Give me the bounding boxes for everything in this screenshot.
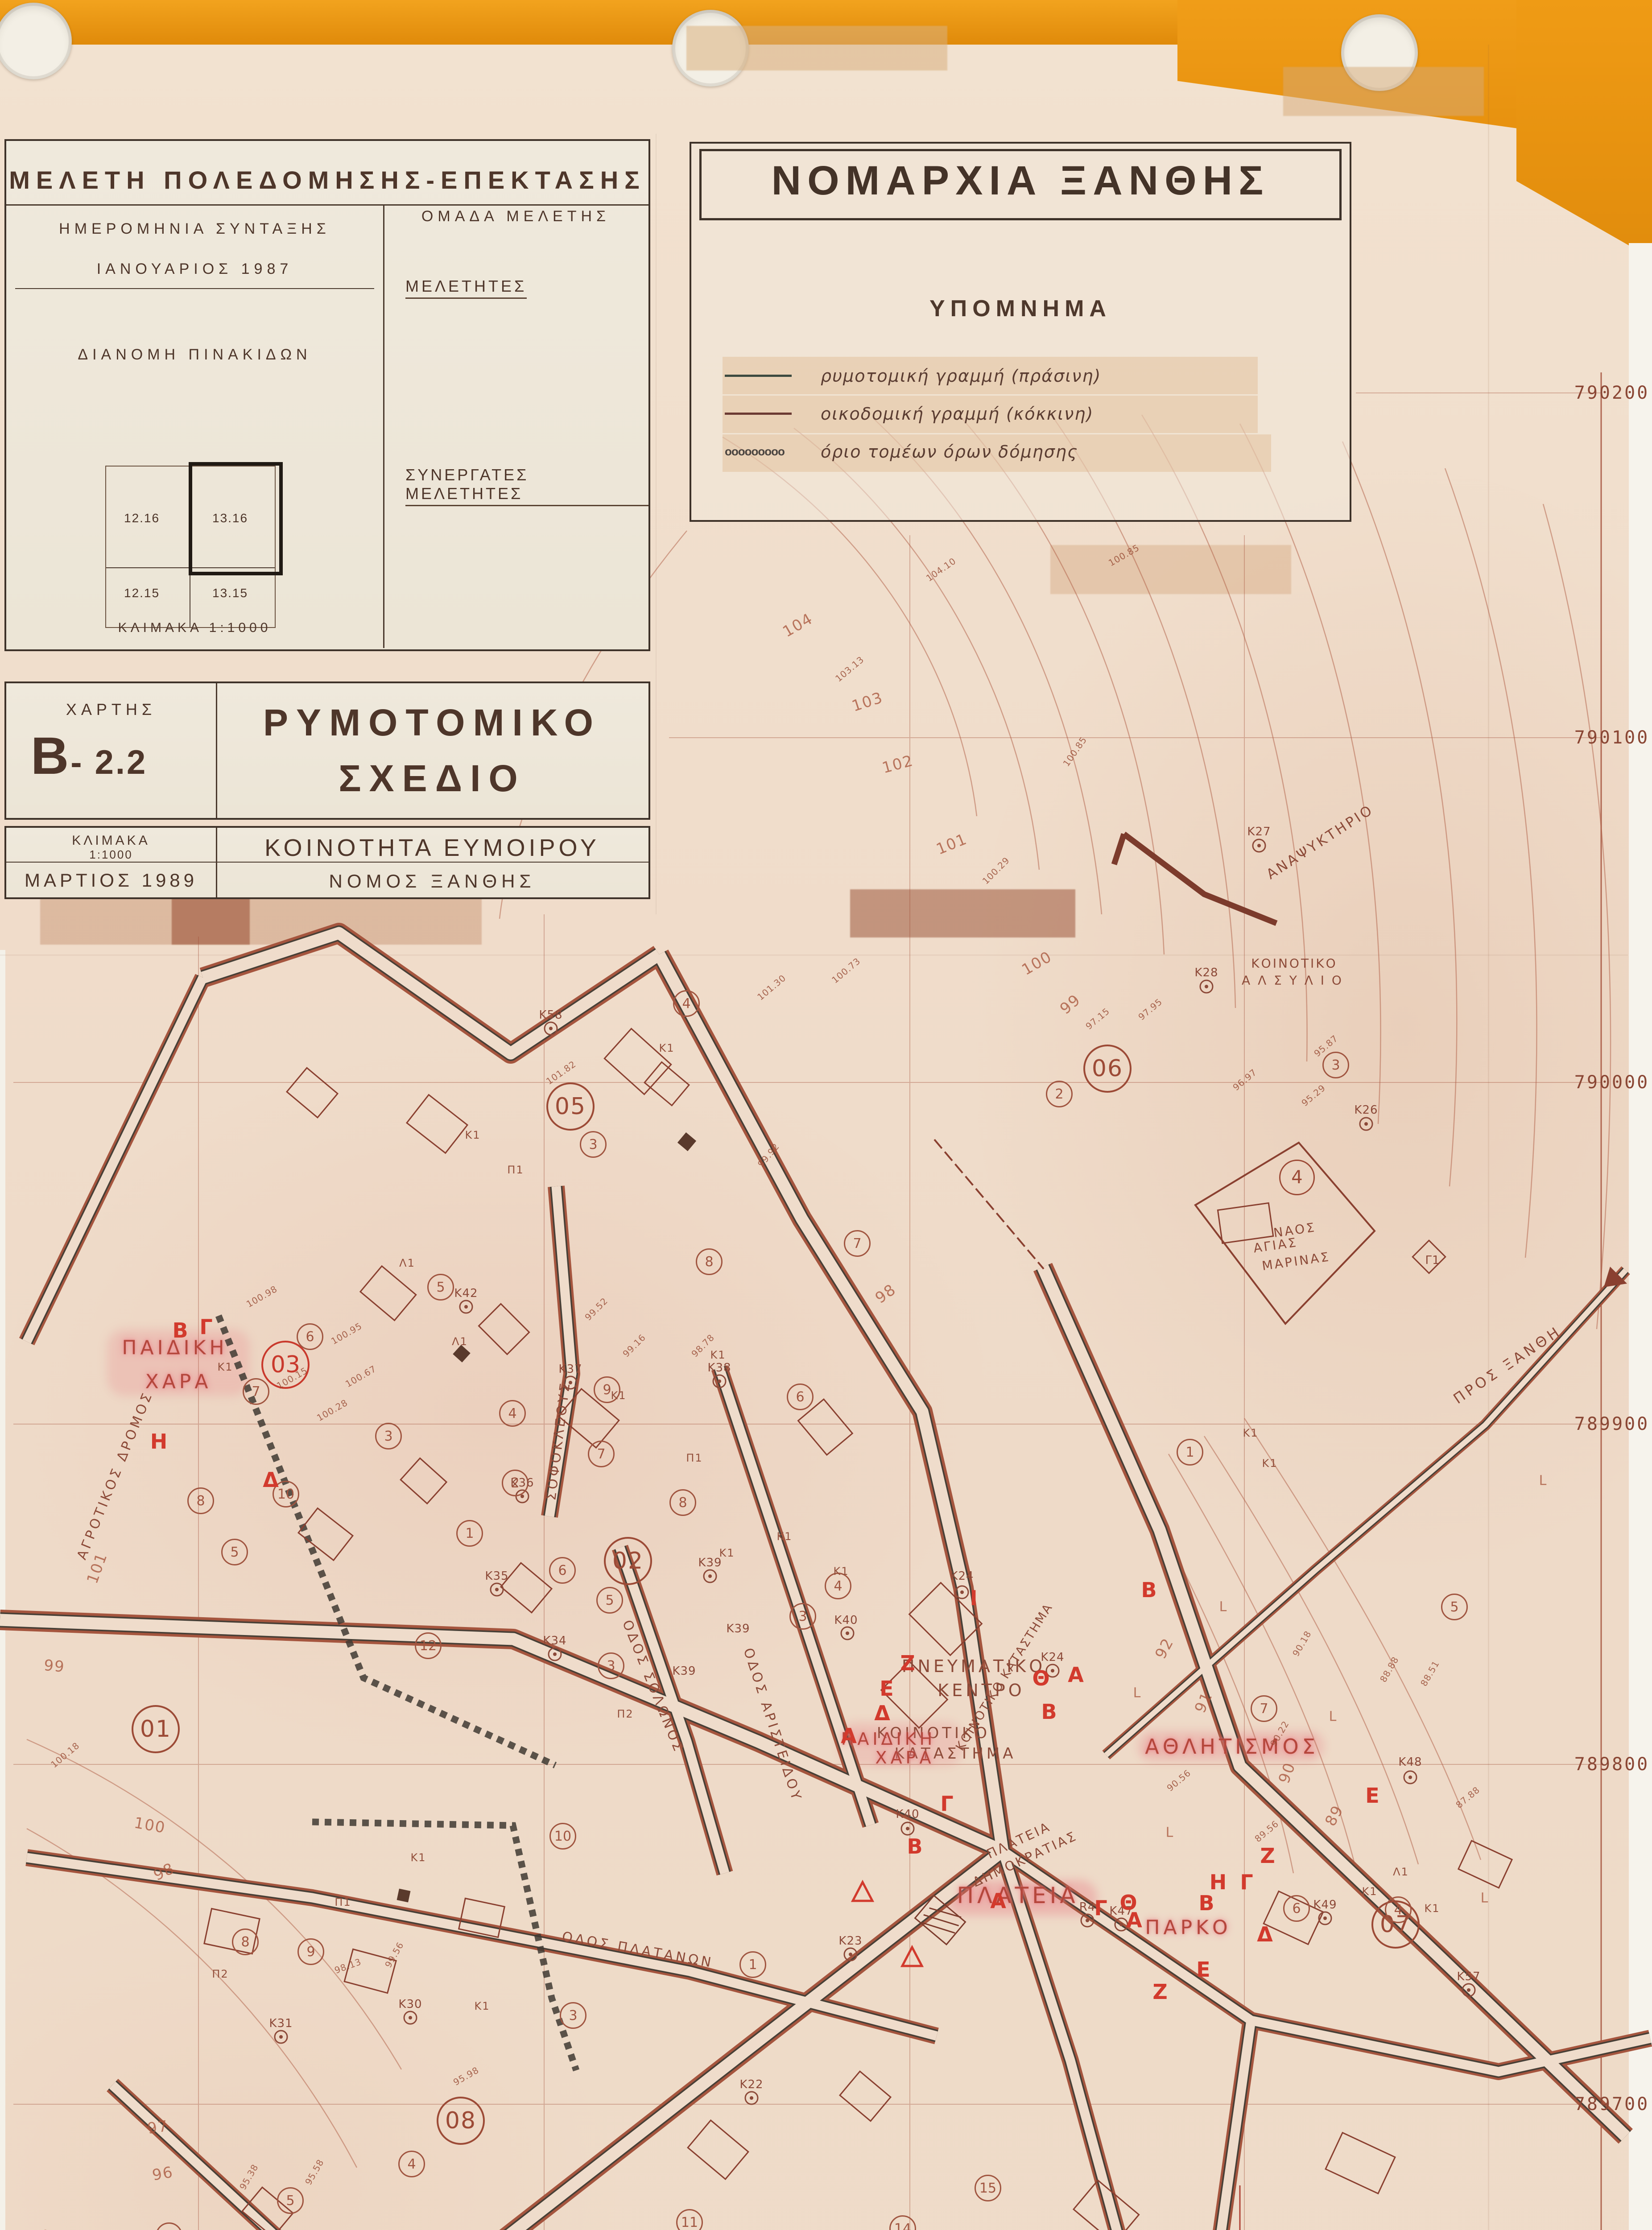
survey-point-label: Κ42 <box>454 1287 478 1300</box>
red-vertex-letter: Ζ <box>1152 1980 1167 2004</box>
contour-label: 104 <box>780 610 816 641</box>
grid-coordinate: 790200 <box>1574 383 1650 403</box>
block-number: 7 <box>844 1230 871 1257</box>
survey-point-label: Κ40 <box>834 1614 858 1627</box>
block-number: 3 <box>598 1652 624 1679</box>
building-code-label: Κ1 <box>410 1851 426 1864</box>
spot-height-label: 89.56 <box>1252 1818 1280 1844</box>
street-name-label: ΑΓΡΟΤΙΚΟΣ ΔΡΟΜΟΣ <box>74 1389 156 1562</box>
map-area-label: ΠΑΡΚΟ <box>1145 1916 1231 1939</box>
building-code-label: Κ1 <box>611 1389 626 1402</box>
contour-label: 99 <box>1057 991 1084 1018</box>
map-area-label: Α Λ Σ Υ Λ Ι Ο <box>1242 973 1343 988</box>
block-number: 11 <box>676 2209 703 2230</box>
survey-point-label: Κ24 <box>950 1569 974 1583</box>
red-vertex-letter: Β <box>1141 1578 1156 1602</box>
building-code-label: Π1 <box>686 1452 702 1464</box>
building-code-label: Π2 <box>617 1708 633 1720</box>
survey-point-label: Κ23 <box>838 1934 862 1948</box>
map-area-label: ΠΝΕΥΜΑΤΙΚΟ <box>902 1656 1045 1676</box>
block-number: 12 <box>415 1632 442 1659</box>
spot-height-label: 99.52 <box>583 1296 610 1323</box>
red-vertex-letter: Γ <box>940 1792 953 1816</box>
survey-point-label: Κ26 <box>1354 1103 1378 1117</box>
red-vertex-letter: Δ <box>874 1701 890 1725</box>
block-number: 8 <box>187 1487 214 1514</box>
red-vertex-letter: Β <box>172 1318 188 1342</box>
contour-label: 97 <box>146 2117 169 2138</box>
spot-height-label: 100.28 <box>315 1397 350 1424</box>
contour-label: L <box>1539 1473 1548 1489</box>
block-number: 6 <box>787 1383 814 1410</box>
block-number: 4 <box>499 1400 526 1427</box>
building-code-label: Λ1 <box>452 1335 468 1348</box>
building-code-label: Κ1 <box>710 1349 726 1361</box>
contour-label: L <box>1166 1825 1174 1841</box>
contour-label: L <box>1481 1891 1489 1906</box>
spot-height-label: 98.13 <box>333 1956 363 1976</box>
sector-number: 08 <box>437 2097 485 2145</box>
map-area-label: ΑΓΙΑΣ <box>1252 1235 1298 1256</box>
survey-point-label: Κ28 <box>1194 966 1218 979</box>
building-code-label: Κ1 <box>1262 1457 1277 1470</box>
map-area-label: ΑΘΛΗΤΙΣΜΟΣ <box>1145 1734 1318 1759</box>
contour-label: 100 <box>1019 948 1055 979</box>
survey-point-label: Κ34 <box>543 1634 566 1648</box>
building-code-label: Π2 <box>212 1968 228 1980</box>
map-area-label: ΚΕΝΤΡΟ <box>938 1681 1024 1700</box>
spot-height-label: 101.30 <box>755 972 788 1002</box>
grid-coordinate: 789900 <box>1574 1414 1650 1434</box>
building-code-label: Κ1 <box>776 1530 792 1543</box>
building-code-label: Κ1 <box>833 1565 849 1578</box>
block-number: 8 <box>696 1248 723 1275</box>
block-number: 4 <box>1279 1160 1315 1195</box>
block-number: 6 <box>297 1323 323 1350</box>
block-number: 15 <box>975 2175 1001 2201</box>
contour-label: 98 <box>872 1280 900 1307</box>
spot-height-label: 104.10 <box>924 555 958 583</box>
spot-height-label: 100.85 <box>1107 542 1141 569</box>
red-vertex-letter: Α <box>841 1724 857 1748</box>
block-number: 3 <box>580 1131 607 1158</box>
red-vertex-letter: Θ <box>1032 1666 1049 1690</box>
spot-height-label: 100.67 <box>343 1363 378 1390</box>
survey-point-label: Κ36 <box>510 1476 534 1490</box>
survey-point-label: Κ24 <box>1041 1651 1064 1664</box>
survey-point-label: Κ39 <box>726 1622 750 1635</box>
contour-label: 100 <box>133 1814 167 1837</box>
contour-label: 89 <box>1322 1802 1347 1829</box>
block-number: 7 <box>243 1378 269 1405</box>
red-vertex-letter: Ζ <box>900 1651 915 1675</box>
red-vertex-letter: Β <box>907 1834 922 1858</box>
spot-height-label: 88.88 <box>1378 1655 1401 1684</box>
spot-height-label: 97.95 <box>1136 996 1164 1022</box>
red-vertex-letter: Ε <box>880 1677 893 1701</box>
contour-label: 91 <box>1191 1689 1216 1716</box>
spot-height-label: 99.16 <box>621 1332 648 1359</box>
building-code-label: Κ1 <box>1424 1902 1440 1915</box>
block-number: 3 <box>375 1423 402 1449</box>
map-area-label: ΠΡΟΣ ΞΑΝΘΗ <box>1450 1322 1565 1407</box>
building-code-label: Λ1 <box>399 1257 415 1269</box>
spot-height-label: 100.85 <box>1061 735 1089 768</box>
block-number: 1 <box>1177 1439 1203 1466</box>
spot-height-label: 100.95 <box>329 1321 364 1347</box>
spot-height-label: 95.98 <box>451 2065 481 2088</box>
spot-height-label: 99.56 <box>383 1940 406 1970</box>
block-number: 5 <box>427 1274 454 1301</box>
building-code-label: Κ1 <box>1243 1427 1258 1439</box>
block-number: 4 <box>673 990 700 1017</box>
survey-point-label: Γ1 <box>1425 1254 1440 1267</box>
block-number: 5 <box>596 1587 623 1614</box>
block-number: 7 <box>588 1441 615 1467</box>
spot-height-label: 88.51 <box>1418 1659 1441 1688</box>
block-number: 3 <box>560 2002 586 2029</box>
block-number: 6 <box>1283 1895 1310 1922</box>
spot-height-label: 97.15 <box>1083 1006 1111 1032</box>
red-vertex-letter: Α <box>1068 1663 1084 1687</box>
block-number: 9 <box>297 1938 324 1965</box>
survey-point-label: Κ39 <box>698 1556 722 1569</box>
red-vertex-letter: Α <box>1126 1908 1142 1932</box>
block-number: 3 <box>789 1603 816 1630</box>
street-name-label: ΟΔΟΣ ΠΛΑΤΑΝΩΝ <box>561 1929 714 1971</box>
survey-point-label: Κ58 <box>539 1008 562 1022</box>
spot-height-label: 90.56 <box>1165 1767 1193 1793</box>
contour-label: 98 <box>151 1859 178 1884</box>
scanned-map-sheet: ΜΕΛΕΤΗ ΠΟΛΕΔΟΜΗΣΗΣ-ΕΠΕΚΤΑΣΗΣ ΗΜΕΡΟΜΗΝΙΑ … <box>0 0 1652 2230</box>
spot-height-label: 100.29 <box>980 855 1012 887</box>
spot-height-label: 87.88 <box>1454 1784 1482 1810</box>
red-vertex-letter: Ζ <box>1260 1844 1275 1868</box>
contour-label: 102 <box>880 752 916 777</box>
survey-point-label: Κ40 <box>896 1808 919 1821</box>
red-vertex-letter: Γ <box>1094 1896 1107 1920</box>
contour-label: 96 <box>151 2163 174 2185</box>
red-vertex-letter: Ι <box>970 1586 977 1610</box>
building-code-label: Κ1 <box>1362 1885 1377 1898</box>
spot-height-label: 103.13 <box>833 654 866 684</box>
survey-point-label: Κ57 <box>1457 1970 1480 1983</box>
building-code-label: Κ1 <box>719 1547 735 1559</box>
spot-height-label: 95.38 <box>237 2162 260 2192</box>
spot-height-label: 99.92 <box>756 1141 781 1169</box>
building-code-label: Κ1 <box>659 1042 674 1054</box>
spot-height-label: 100.18 <box>49 1740 82 1770</box>
street-name-label: ΟΔΟΣ ΑΡΙΣΤΕΙΔΟΥ <box>740 1646 805 1804</box>
red-vertex-letter: Γ <box>199 1315 212 1339</box>
survey-point-label: Κ31 <box>269 2017 293 2030</box>
block-number: 14 <box>889 2215 916 2230</box>
block-number: 3 <box>1322 1052 1349 1078</box>
survey-point-label: Κ39 <box>672 1664 696 1678</box>
red-vertex-letter: Δ <box>263 1468 279 1492</box>
block-number: 8 <box>232 1929 259 1955</box>
block-number: 5 <box>1441 1594 1468 1620</box>
map-area-label: ΚΟΙΝΟΤΙΚΟ <box>1251 956 1337 971</box>
spot-height-label: 100.98 <box>244 1284 279 1310</box>
sector-number: 06 <box>1083 1045 1132 1093</box>
grid-coordinate: 789800 <box>1574 1754 1650 1775</box>
red-vertex-letter: Ε <box>1196 1957 1210 1982</box>
red-vertex-letter: Η <box>150 1429 168 1454</box>
survey-point-label: Κ49 <box>1313 1898 1337 1912</box>
block-number: 1 <box>456 1520 483 1547</box>
red-vertex-letter: Β <box>1041 1700 1057 1724</box>
red-vertex-letter: Ε <box>1365 1784 1379 1808</box>
block-number: 10 <box>549 1823 576 1850</box>
block-number: 4 <box>398 2151 425 2177</box>
block-number: 5 <box>277 2187 304 2214</box>
building-code-label: Κ1 <box>465 1129 480 1141</box>
contour-label: 101 <box>934 830 970 859</box>
map-area-label: ΧΑΡΑ <box>876 1748 935 1767</box>
sector-number: 02 <box>604 1537 652 1585</box>
building-code-label: Κ1 <box>217 1361 233 1373</box>
spot-height-label: 95.29 <box>1299 1082 1327 1108</box>
red-vertex-letter: Α <box>990 1889 1006 1913</box>
red-vertex-letter: Γ <box>1240 1870 1253 1894</box>
red-vertex-letter: Η <box>1210 1870 1227 1894</box>
spot-height-label: 96.97 <box>1231 1067 1259 1093</box>
block-number: 7 <box>1251 1695 1277 1722</box>
contour-label: 103 <box>850 689 885 715</box>
spot-height-label: 95.58 <box>303 2157 326 2187</box>
survey-point-label: Κ22 <box>739 2078 763 2091</box>
building-code-label: Κ1 <box>474 2000 490 2012</box>
red-vertex-letter: Β <box>1198 1891 1214 1915</box>
block-number: 6 <box>156 2222 182 2230</box>
contour-label: 92 <box>1152 1635 1177 1662</box>
survey-point-label: Κ27 <box>1247 825 1271 838</box>
survey-point-label: Κ30 <box>398 1998 422 2011</box>
survey-point-label: Κ38 <box>707 1361 731 1375</box>
grid-coordinate: 790100 <box>1574 727 1650 748</box>
block-number: 1 <box>739 1951 766 1978</box>
survey-point-label: Κ35 <box>485 1569 508 1583</box>
contour-label: L <box>1219 1599 1228 1615</box>
survey-point-label: Κ48 <box>1398 1755 1422 1769</box>
contour-label: 90 <box>1275 1760 1299 1786</box>
sector-number: 01 <box>132 1705 180 1753</box>
red-vertex-letter: Δ <box>1257 1922 1273 1946</box>
street-name-label: ΣΟΦΟΚΛΕΟΥΣ <box>543 1380 574 1501</box>
block-number: 6 <box>549 1557 576 1584</box>
survey-point-label: R4 <box>1079 1900 1096 1914</box>
map-area-label: ΑΝΑΨΥΚΤΗΡΙΟ <box>1264 801 1376 883</box>
grid-coordinate: 790000 <box>1574 1072 1650 1093</box>
spot-height-label: 100.73 <box>830 955 863 985</box>
map-area-label: ΧΑΡΑ <box>145 1371 212 1393</box>
contour-label: L <box>1329 1709 1338 1725</box>
contour-label: L <box>1133 1685 1142 1701</box>
street-name-label: ΟΔΟΣ ΣΟΛΩΝΟΣ <box>619 1618 687 1755</box>
contour-label: 99 <box>43 1656 66 1676</box>
building-code-label: Π1 <box>507 1164 524 1176</box>
block-number: 8 <box>669 1489 696 1516</box>
building-code-label: Π1 <box>335 1896 351 1908</box>
survey-point-label: Κ37 <box>558 1363 582 1376</box>
block-number: 2 <box>1046 1081 1073 1107</box>
block-number: 4 <box>1385 1896 1412 1923</box>
sector-number: 05 <box>546 1082 595 1131</box>
map-labels-layer: ΠΝΕΥΜΑΤΙΚΟΚΕΝΤΡΟΚΟΙΝΟΤΙΚΟΚΑΤΑΣΤΗΜΑΚΟΙΝΟΤ… <box>0 0 1652 2230</box>
grid-coordinate: 789700 <box>1574 2094 1650 2114</box>
spot-height-label: 90.18 <box>1290 1629 1313 1658</box>
building-code-label: Λ1 <box>1393 1866 1409 1878</box>
block-number: 5 <box>221 1539 248 1565</box>
